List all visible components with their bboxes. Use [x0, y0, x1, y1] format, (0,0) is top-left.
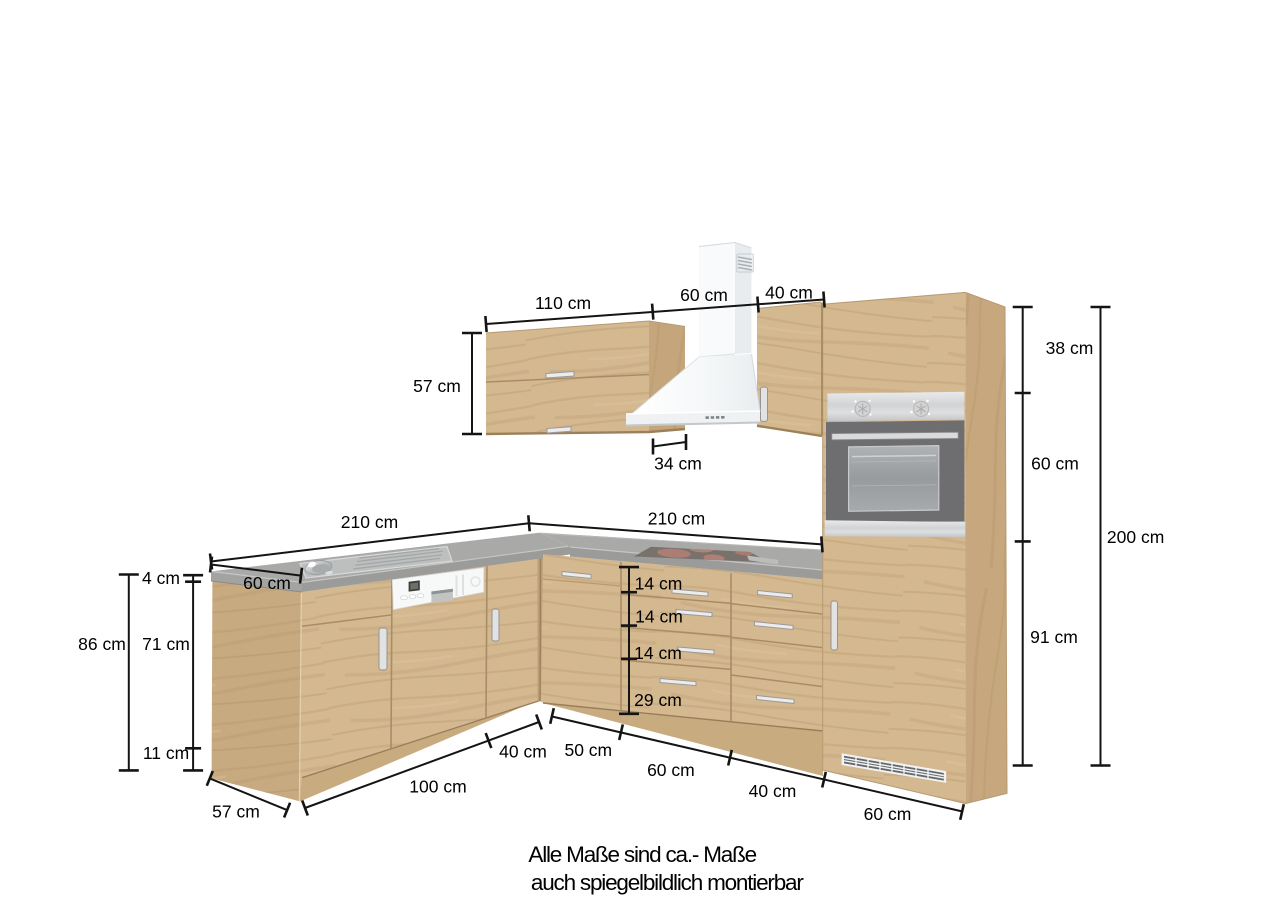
svg-text:4 cm: 4 cm	[142, 568, 180, 588]
svg-text:11 cm: 11 cm	[143, 743, 189, 763]
svg-text:40 cm: 40 cm	[749, 781, 797, 801]
svg-text:60 cm: 60 cm	[680, 285, 728, 305]
svg-text:100 cm: 100 cm	[409, 777, 466, 797]
svg-text:40 cm: 40 cm	[765, 283, 813, 303]
svg-text:29 cm: 29 cm	[634, 690, 682, 710]
svg-text:60 cm: 60 cm	[864, 804, 912, 824]
svg-text:60 cm: 60 cm	[1031, 454, 1079, 474]
svg-text:60 cm: 60 cm	[647, 760, 695, 780]
svg-text:91 cm: 91 cm	[1030, 627, 1078, 647]
svg-text:14 cm: 14 cm	[635, 574, 683, 594]
svg-text:110 cm: 110 cm	[535, 293, 591, 313]
svg-text:14 cm: 14 cm	[635, 607, 683, 627]
svg-text:60 cm: 60 cm	[243, 573, 291, 593]
svg-text:86 cm: 86 cm	[78, 634, 126, 654]
svg-text:200 cm: 200 cm	[1107, 527, 1164, 547]
svg-text:57 cm: 57 cm	[413, 376, 461, 396]
svg-text:71 cm: 71 cm	[142, 634, 190, 654]
svg-text:57 cm: 57 cm	[212, 802, 260, 822]
svg-text:210 cm: 210 cm	[648, 509, 705, 529]
svg-text:40 cm: 40 cm	[499, 742, 547, 762]
svg-text:Alle Maße sind ca.- Maße: Alle Maße sind ca.- Maße	[528, 842, 756, 867]
svg-text:34 cm: 34 cm	[654, 454, 702, 474]
svg-text:auch spiegelbildlich montierba: auch spiegelbildlich montierbar	[531, 870, 804, 895]
svg-text:50 cm: 50 cm	[564, 740, 612, 760]
svg-text:210 cm: 210 cm	[341, 512, 398, 532]
svg-text:38 cm: 38 cm	[1046, 338, 1094, 358]
svg-text:14 cm: 14 cm	[634, 643, 682, 663]
